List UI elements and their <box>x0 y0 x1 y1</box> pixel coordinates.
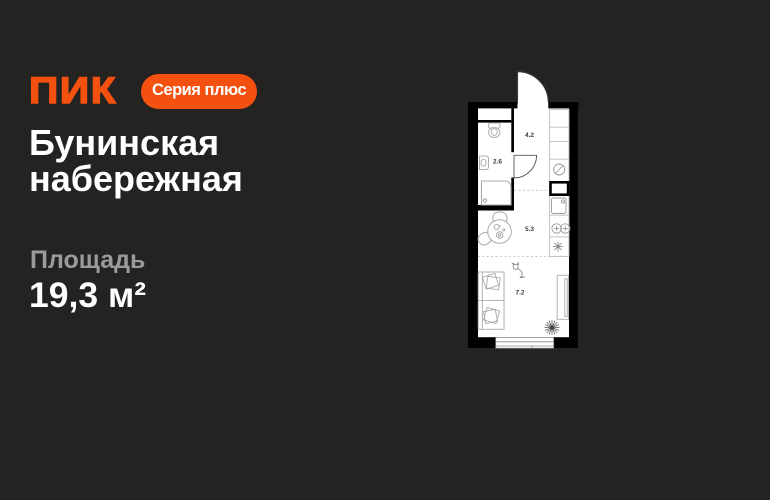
svg-text:5.3: 5.3 <box>525 226 534 233</box>
svg-text:7.2: 7.2 <box>516 290 525 297</box>
svg-text:4.2: 4.2 <box>525 132 534 139</box>
svg-text:2.6: 2.6 <box>493 159 502 166</box>
